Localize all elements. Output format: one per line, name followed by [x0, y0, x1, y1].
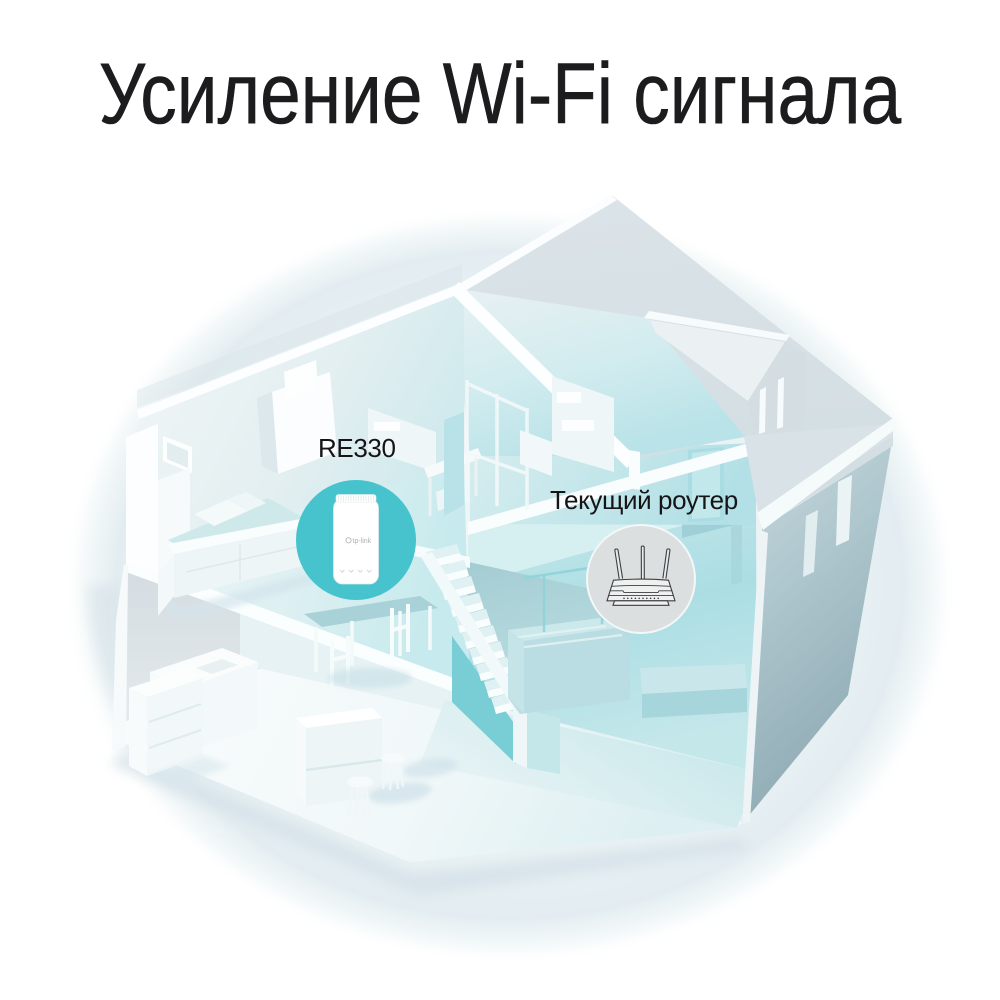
svg-text:tp-link: tp-link [353, 538, 372, 545]
